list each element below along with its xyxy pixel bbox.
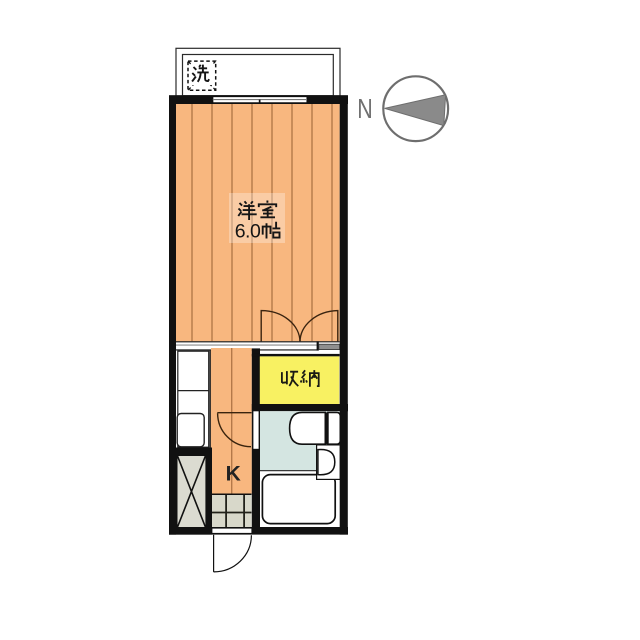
svg-text:N: N [357,93,373,124]
svg-text:K: K [226,462,241,485]
svg-text:6.0: 6.0 [235,221,261,243]
